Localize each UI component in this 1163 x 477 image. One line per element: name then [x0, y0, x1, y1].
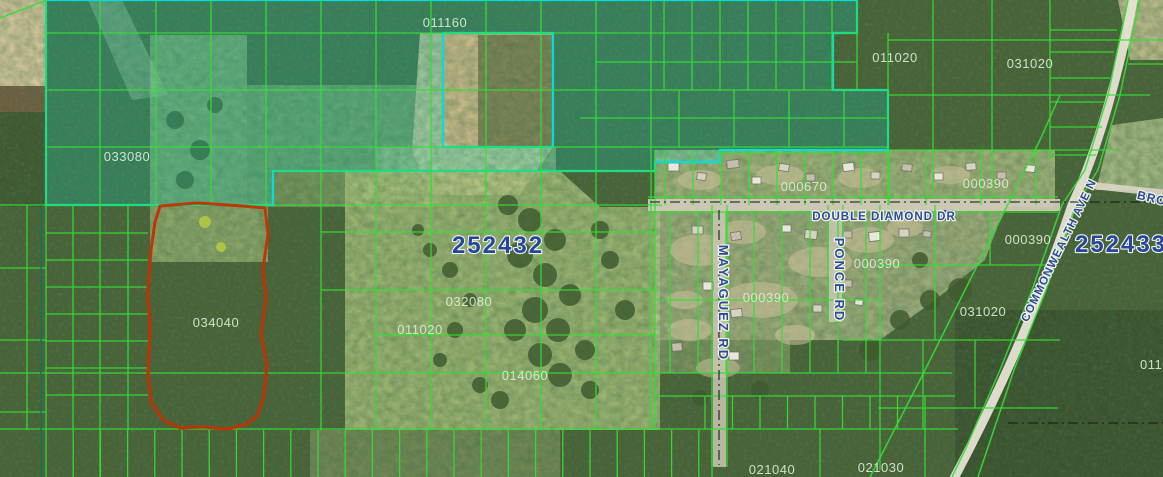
tree-canopy: [890, 310, 910, 330]
section-number-label: 252433: [1075, 231, 1163, 258]
tree-canopy: [528, 343, 552, 367]
map-viewport[interactable]: 0111600110200310200330800006700003900003…: [0, 0, 1163, 477]
parcel-number-label: 031020: [1007, 56, 1053, 71]
building: [805, 229, 818, 239]
parcel-number-label: 033080: [104, 149, 150, 164]
building: [668, 163, 679, 171]
building: [843, 162, 855, 171]
road-name-label: MAYAGUEZ RD: [716, 245, 731, 361]
building: [902, 164, 913, 172]
tree-canopy: [920, 290, 940, 310]
tree-canopy: [591, 221, 609, 239]
building: [871, 172, 880, 179]
parcel-number-label: 011160: [423, 15, 467, 30]
building: [899, 229, 909, 237]
building: [752, 177, 761, 184]
building: [782, 225, 791, 232]
road-double-diamond-dr: [648, 199, 1060, 211]
tree-canopy: [442, 262, 458, 278]
building: [697, 173, 707, 181]
tree-canopy: [518, 208, 542, 232]
road-name-label: PONCE RD: [832, 238, 847, 323]
tree-canopy: [504, 319, 526, 341]
brush-spot: [216, 242, 226, 252]
building: [727, 159, 740, 168]
tree-canopy: [601, 251, 619, 269]
building: [813, 305, 822, 312]
tree-canopy: [546, 318, 570, 342]
aerial-parcel-map[interactable]: 0111600110200310200330800006700003900003…: [0, 0, 1163, 477]
bare-ground-spot: [668, 319, 712, 341]
tree-canopy: [575, 340, 595, 360]
tree-canopy: [548, 363, 572, 387]
parcel-number-label: 021040: [749, 462, 795, 477]
building: [869, 232, 881, 242]
tree-canopy: [433, 353, 447, 367]
building: [731, 308, 743, 317]
tree-canopy: [423, 243, 437, 257]
parcel-number-label: 021030: [858, 460, 904, 475]
road-name-label: DOUBLE DIAMOND DR: [812, 211, 956, 223]
parcel-number-label: 000670: [781, 179, 827, 194]
building: [672, 343, 683, 352]
tree-canopy: [615, 300, 635, 320]
parcel-number-label: 000390: [743, 290, 789, 305]
bare-ground-spot: [775, 325, 815, 345]
parcel-number-label: 032080: [446, 294, 492, 309]
parcel-number-label: 0110: [1140, 357, 1163, 372]
parcel-number-label: 031020: [960, 304, 1006, 319]
tree-canopy: [522, 297, 548, 323]
parcel-number-label: 034040: [193, 315, 239, 330]
building: [730, 231, 741, 240]
tree-canopy: [559, 284, 581, 306]
tree-canopy: [533, 263, 557, 287]
building: [923, 231, 932, 238]
parcel-number-label: 000390: [1005, 232, 1051, 247]
brush-spot: [199, 216, 211, 228]
section-number-label: 252432: [452, 232, 544, 259]
parcel-number-label: 000390: [963, 176, 1009, 191]
tree-canopy: [491, 391, 509, 409]
tree-canopy: [859, 339, 881, 361]
parcel-number-label: 000390: [854, 256, 900, 271]
building: [779, 163, 790, 171]
parcel-number-label: 014060: [502, 368, 548, 383]
tree-canopy: [412, 224, 424, 236]
parcel-number-label: 011020: [397, 322, 442, 337]
parcel-number-label: 011020: [872, 50, 917, 65]
building: [966, 163, 977, 171]
building: [934, 173, 943, 180]
